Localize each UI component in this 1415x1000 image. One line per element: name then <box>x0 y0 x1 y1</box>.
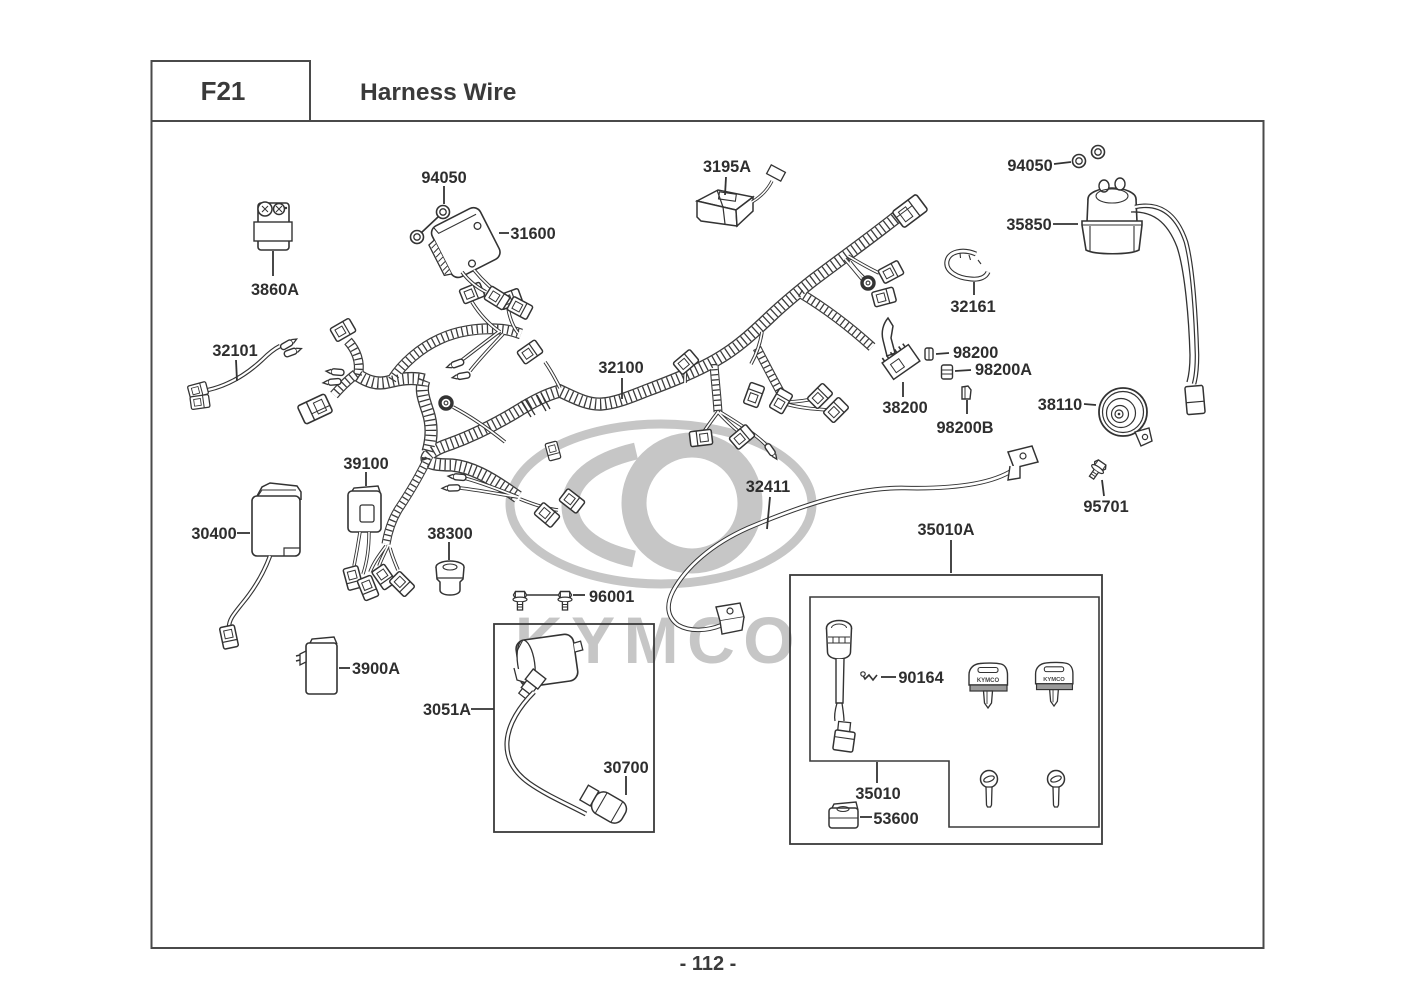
svg-text:31600: 31600 <box>510 225 555 243</box>
svg-text:38200: 38200 <box>882 399 927 417</box>
svg-text:3051A: 3051A <box>423 701 471 719</box>
svg-text:94050: 94050 <box>421 169 466 187</box>
svg-text:53600: 53600 <box>873 810 918 828</box>
svg-text:98200: 98200 <box>953 344 998 362</box>
svg-text:38110: 38110 <box>1038 396 1082 414</box>
svg-text:35010: 35010 <box>855 785 900 803</box>
svg-text:3900A: 3900A <box>352 660 400 678</box>
svg-text:98200B: 98200B <box>936 419 993 437</box>
svg-text:3860A: 3860A <box>251 281 299 299</box>
svg-text:35010A: 35010A <box>917 521 974 539</box>
svg-text:90164: 90164 <box>898 669 943 687</box>
svg-text:35850: 35850 <box>1006 216 1051 234</box>
svg-text:32161: 32161 <box>950 298 995 316</box>
svg-text:94050: 94050 <box>1007 157 1052 175</box>
svg-text:95701: 95701 <box>1083 498 1128 516</box>
svg-text:- 112 -: - 112 - <box>680 953 737 975</box>
svg-text:Harness Wire: Harness Wire <box>360 79 516 106</box>
svg-text:3195A: 3195A <box>703 158 751 176</box>
svg-text:32101: 32101 <box>212 342 257 360</box>
svg-text:32411: 32411 <box>746 478 790 496</box>
svg-text:39100: 39100 <box>343 455 388 473</box>
svg-text:30400: 30400 <box>191 525 236 543</box>
svg-text:96001: 96001 <box>589 588 634 606</box>
svg-text:30700: 30700 <box>603 759 648 777</box>
svg-text:F21: F21 <box>201 76 246 106</box>
svg-text:32100: 32100 <box>598 359 643 377</box>
svg-text:98200A: 98200A <box>975 361 1032 379</box>
svg-text:38300: 38300 <box>427 525 472 543</box>
